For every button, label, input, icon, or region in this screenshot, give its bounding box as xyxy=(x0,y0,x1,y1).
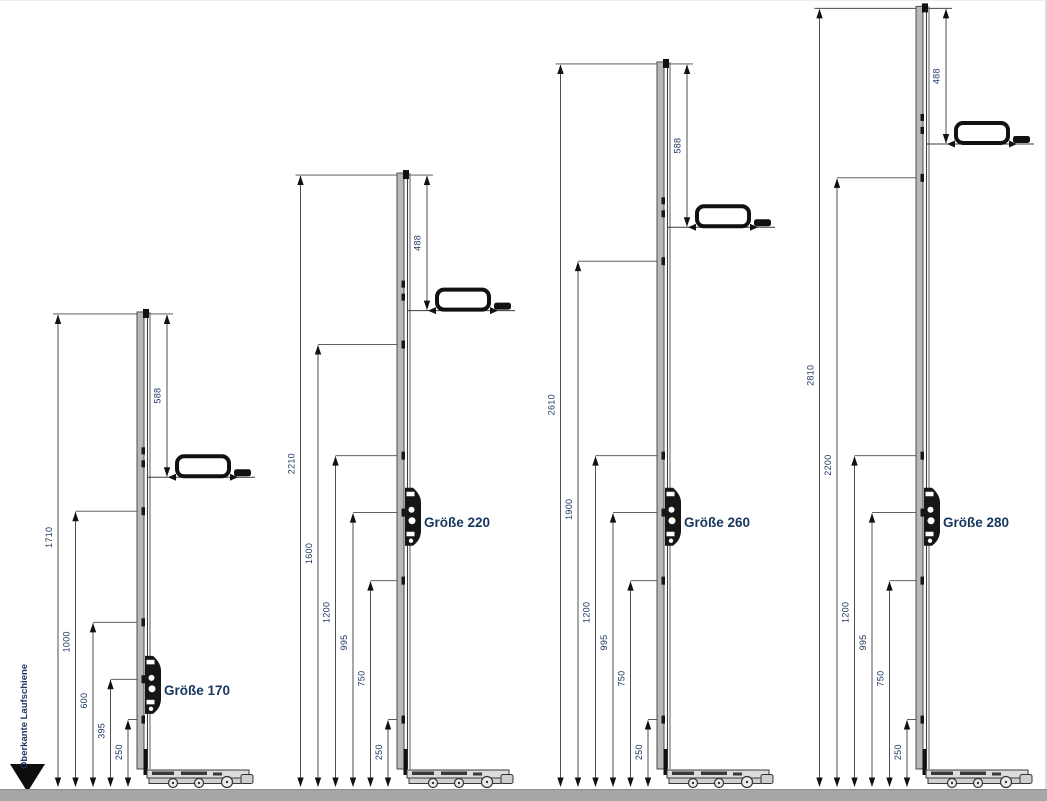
size-label: Größe 260 xyxy=(684,515,750,530)
crank-handle xyxy=(407,290,515,315)
dimension-value: 1600 xyxy=(304,543,314,564)
roller-carriage xyxy=(144,749,254,788)
dimension: 1200 xyxy=(841,456,918,787)
crank-handle xyxy=(667,206,775,231)
dimension: 995 xyxy=(339,513,398,787)
size-group: 221016001200995750250488 xyxy=(287,170,516,787)
dimension: 995 xyxy=(599,513,658,787)
dimension-value: 1710 xyxy=(44,527,54,548)
dimension-value: 488 xyxy=(413,235,423,251)
dimension: 1200 xyxy=(582,456,659,787)
dimension-value: 1200 xyxy=(841,602,851,623)
datum-label: Oberkante Laufschiene xyxy=(19,647,30,769)
dimension-value: 995 xyxy=(339,635,349,651)
dimension-value: 250 xyxy=(374,744,384,760)
dimension: 1900 xyxy=(564,261,658,787)
dimension: 250 xyxy=(114,720,138,787)
dimension-value: 1900 xyxy=(564,499,574,520)
rail-top-cap xyxy=(663,59,669,68)
dimension: 1600 xyxy=(304,345,398,787)
rail-profile xyxy=(916,3,929,769)
dimension-value: 588 xyxy=(673,138,683,154)
size-group: 261019001200995750250588 xyxy=(547,59,776,788)
dimension: 250 xyxy=(374,720,398,787)
dimension-value: 2200 xyxy=(823,454,833,475)
dimension-value: 750 xyxy=(876,671,886,687)
dimension-value: 488 xyxy=(932,68,942,84)
handle-pin xyxy=(494,303,511,310)
size-label: Größe 280 xyxy=(943,515,1009,530)
dimension: 250 xyxy=(893,720,917,787)
gear-box xyxy=(145,656,161,714)
gear-box xyxy=(405,488,421,546)
crank-handle xyxy=(926,123,1034,148)
rail-top-cap xyxy=(922,3,928,12)
technical-drawing: 1710100060039525058822101600120099575025… xyxy=(0,0,1047,801)
dimension: 1000 xyxy=(62,511,139,787)
dimension: 250 xyxy=(634,720,658,787)
dimension-value: 2810 xyxy=(806,365,816,386)
dimension-value: 2610 xyxy=(547,394,557,415)
dimension: 995 xyxy=(858,513,917,787)
dimension-value: 1200 xyxy=(322,602,332,623)
dimension-top: 488 xyxy=(413,176,431,311)
dimension-value: 250 xyxy=(114,744,124,760)
dimension-value: 750 xyxy=(617,671,627,687)
dimension: 2810 xyxy=(806,8,953,787)
size-group: 281022001200995750250488 xyxy=(806,3,1035,787)
dimension-value: 600 xyxy=(79,693,89,709)
size-label: Größe 170 xyxy=(164,683,230,698)
rail-top-cap xyxy=(403,170,409,179)
dimension-value: 995 xyxy=(858,635,868,651)
dimension-value: 588 xyxy=(153,388,163,404)
dimension-value: 250 xyxy=(634,744,644,760)
dimension-value: 2210 xyxy=(287,453,297,474)
crank-handle xyxy=(147,456,255,481)
rail-profile xyxy=(657,59,670,769)
dimension: 600 xyxy=(79,622,138,787)
dimension-top: 488 xyxy=(932,9,950,144)
handle-pin xyxy=(1013,136,1030,143)
roller-carriage xyxy=(923,749,1033,788)
drawing-canvas: 1710100060039525058822101600120099575025… xyxy=(0,1,1047,801)
dimension-value: 1000 xyxy=(62,631,72,652)
dimension-value: 1200 xyxy=(582,602,592,623)
size-group: 17101000600395250588 xyxy=(44,309,255,788)
ground-bar xyxy=(0,789,1047,801)
dimension: 1710 xyxy=(44,314,173,787)
roller-carriage xyxy=(664,749,774,788)
dimension: 395 xyxy=(97,679,139,787)
rail-top-cap xyxy=(143,309,149,318)
dimension-value: 750 xyxy=(357,671,367,687)
size-label: Größe 220 xyxy=(424,515,490,530)
dimension: 2210 xyxy=(287,175,434,787)
dimension: 1200 xyxy=(322,456,399,787)
dimension-top: 588 xyxy=(153,314,171,476)
rail-profile xyxy=(397,170,410,769)
gear-box xyxy=(924,488,940,546)
dimension-value: 395 xyxy=(97,723,107,739)
handle-pin xyxy=(754,219,771,226)
handle-pin xyxy=(234,469,251,476)
dimension-top: 588 xyxy=(673,64,691,226)
dimension-value: 250 xyxy=(893,744,903,760)
dimension: 2200 xyxy=(823,178,917,787)
dimension-value: 995 xyxy=(599,635,609,651)
roller-carriage xyxy=(404,749,514,788)
gear-box xyxy=(665,488,681,546)
